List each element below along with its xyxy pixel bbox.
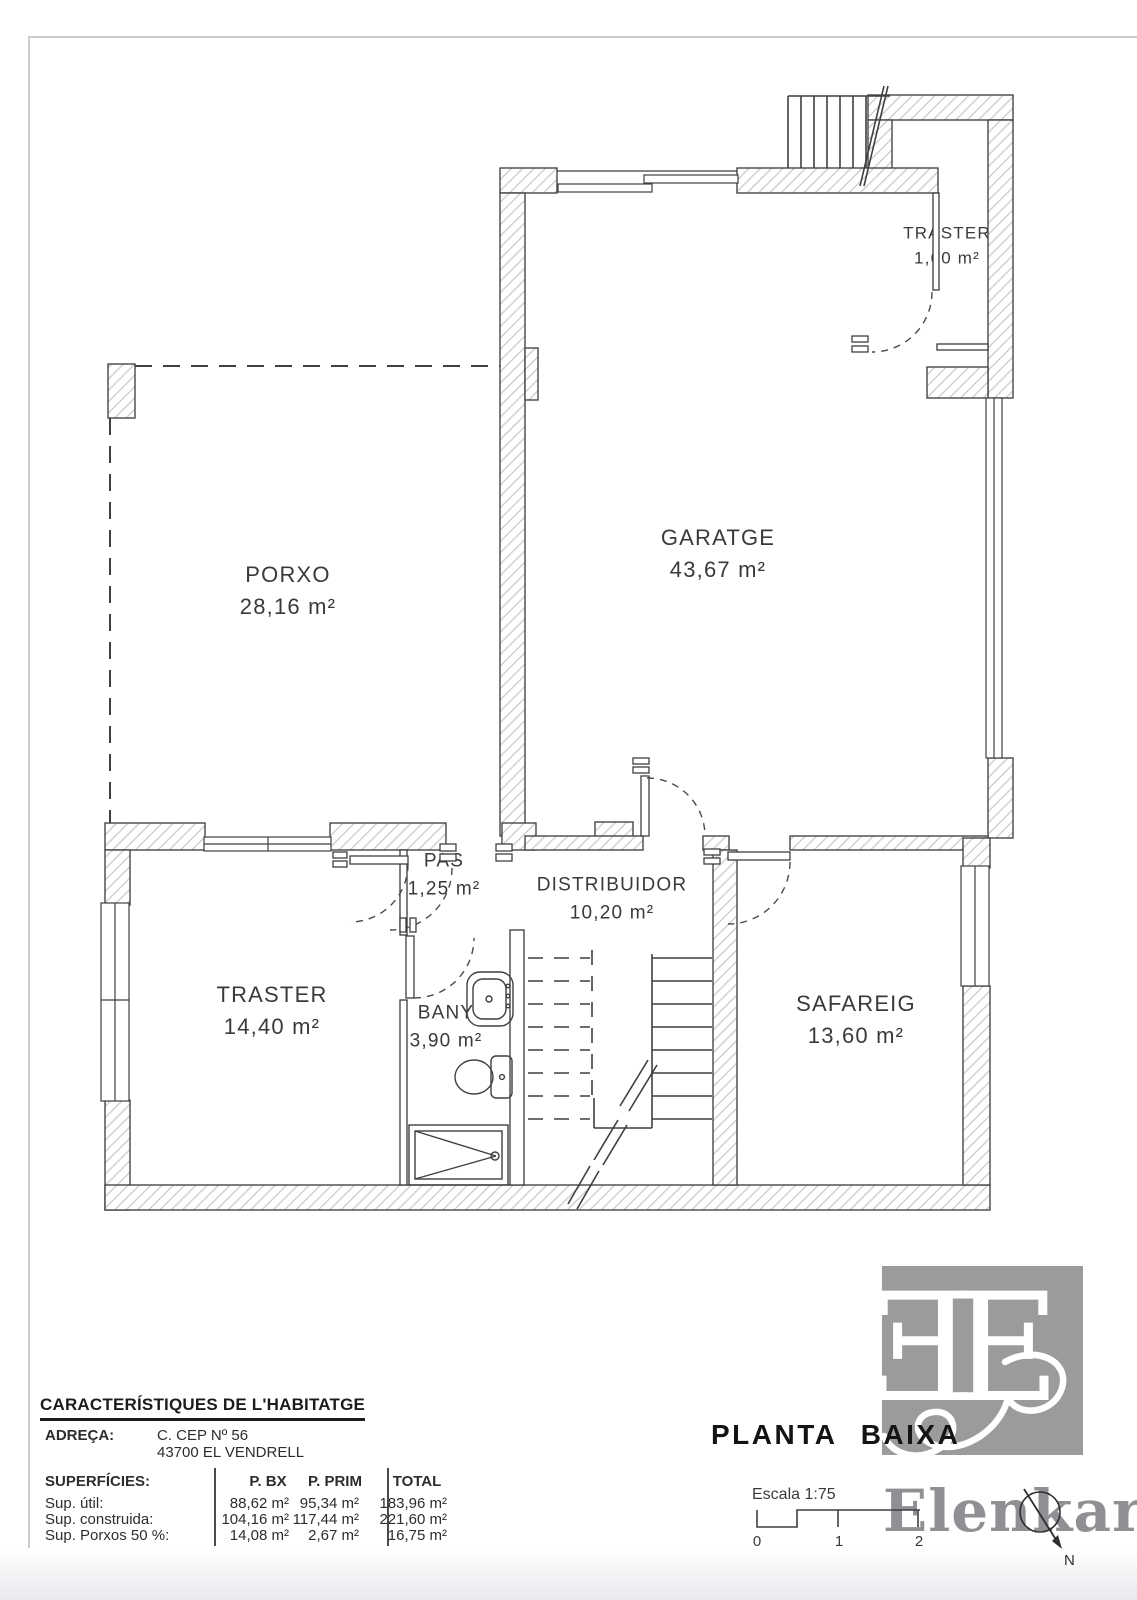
room-label-porxo: PORXO 28,16 m² [240,559,336,623]
garage-sliding-door [557,171,738,192]
row-value: 2,67 m² [308,1527,359,1544]
row-label: Sup. construida: [45,1511,153,1528]
room-name: PAS [408,847,481,875]
room-area: 28,16 m² [240,591,336,623]
window-left-traster [101,903,129,1101]
room-area: 14,40 m² [216,1011,327,1043]
porch-pillar [108,364,135,418]
room-label-traster-top: TRASTER 1,60 m² [903,221,991,270]
staircase [528,950,712,1209]
room-label-distribuidor: DISTRIBUIDOR 10,20 m² [537,871,688,926]
room-name: TRASTER [903,221,991,246]
plan-title: PLANTA BAIXA [711,1419,960,1451]
door-garage-distribuidor [633,758,705,836]
room-name: GARATGE [661,522,775,554]
characteristics-title: CARACTERÍSTIQUES DE L'HABITATGE [40,1395,365,1421]
column-header-pbx: P. BX [249,1473,286,1490]
shower-icon [409,1125,508,1185]
row-value: 104,16 m² [221,1511,289,1528]
window-safareig-right [961,866,989,986]
row-value: 183,96 m² [379,1495,447,1512]
room-label-pas: PAS 1,25 m² [408,847,481,902]
address-line2: 43700 EL VENDRELL [157,1444,304,1461]
row-value: 95,34 m² [300,1495,359,1512]
room-area: 3,90 m² [410,1027,483,1055]
north-label: N [1064,1552,1075,1569]
surfaces-label: SUPERFÍCIES: [45,1473,150,1490]
room-name: DISTRIBUIDOR [537,871,688,899]
room-label-bany: BANY 3,90 m² [410,999,483,1054]
row-value: 88,62 m² [230,1495,289,1512]
door-traster-baix [333,852,408,922]
row-value: 16,75 m² [388,1527,447,1544]
address-line1: C. CEP Nº 56 [157,1427,248,1444]
row-label: Sup. útil: [45,1495,103,1512]
room-area: 13,60 m² [796,1020,916,1052]
room-name: BANY [410,999,483,1027]
room-label-garatge: GARATGE 43,67 m² [661,522,775,586]
door-safareig [704,849,790,924]
scan-border-left [28,36,30,1564]
room-name: TRASTER [216,979,327,1011]
room-name: PORXO [240,559,336,591]
column-header-total: TOTAL [393,1473,442,1490]
scale-tick-0: 0 [753,1533,761,1550]
door-bany [400,918,474,998]
room-area: 1,60 m² [903,246,991,271]
row-value: 117,44 m² [293,1511,359,1528]
scale-label: Escala 1:75 [752,1486,836,1504]
door-traster-top [852,292,932,352]
scale-tick-1: 1 [835,1533,843,1550]
room-label-safareig: SAFAREIG 13,60 m² [796,988,916,1052]
room-area: 10,20 m² [537,899,688,927]
column-header-pprim: P. PRIM [308,1473,362,1490]
floor-plan-page: Elenkar [0,0,1137,1600]
row-value: 221,60 m² [379,1511,447,1528]
row-value: 14,08 m² [230,1527,289,1544]
scale-tick-2: 2 [915,1533,923,1550]
room-label-traster-baix: TRASTER 14,40 m² [216,979,327,1043]
table-separator-1 [214,1468,216,1546]
scan-border-top [28,36,1137,38]
room-area: 43,67 m² [661,554,775,586]
room-name: SAFAREIG [796,988,916,1020]
window-traster-top-wall [204,837,331,851]
address-label: ADREÇA: [45,1427,114,1444]
stair-break-marks [568,1060,657,1209]
row-label: Sup. Porxos 50 %: [45,1527,169,1544]
toilet-icon [455,1056,512,1098]
room-area: 1,25 m² [408,875,481,903]
page-footer-shade [0,1548,1137,1600]
exterior-stairs-icon [788,86,890,186]
window-garage-right [986,398,1002,758]
